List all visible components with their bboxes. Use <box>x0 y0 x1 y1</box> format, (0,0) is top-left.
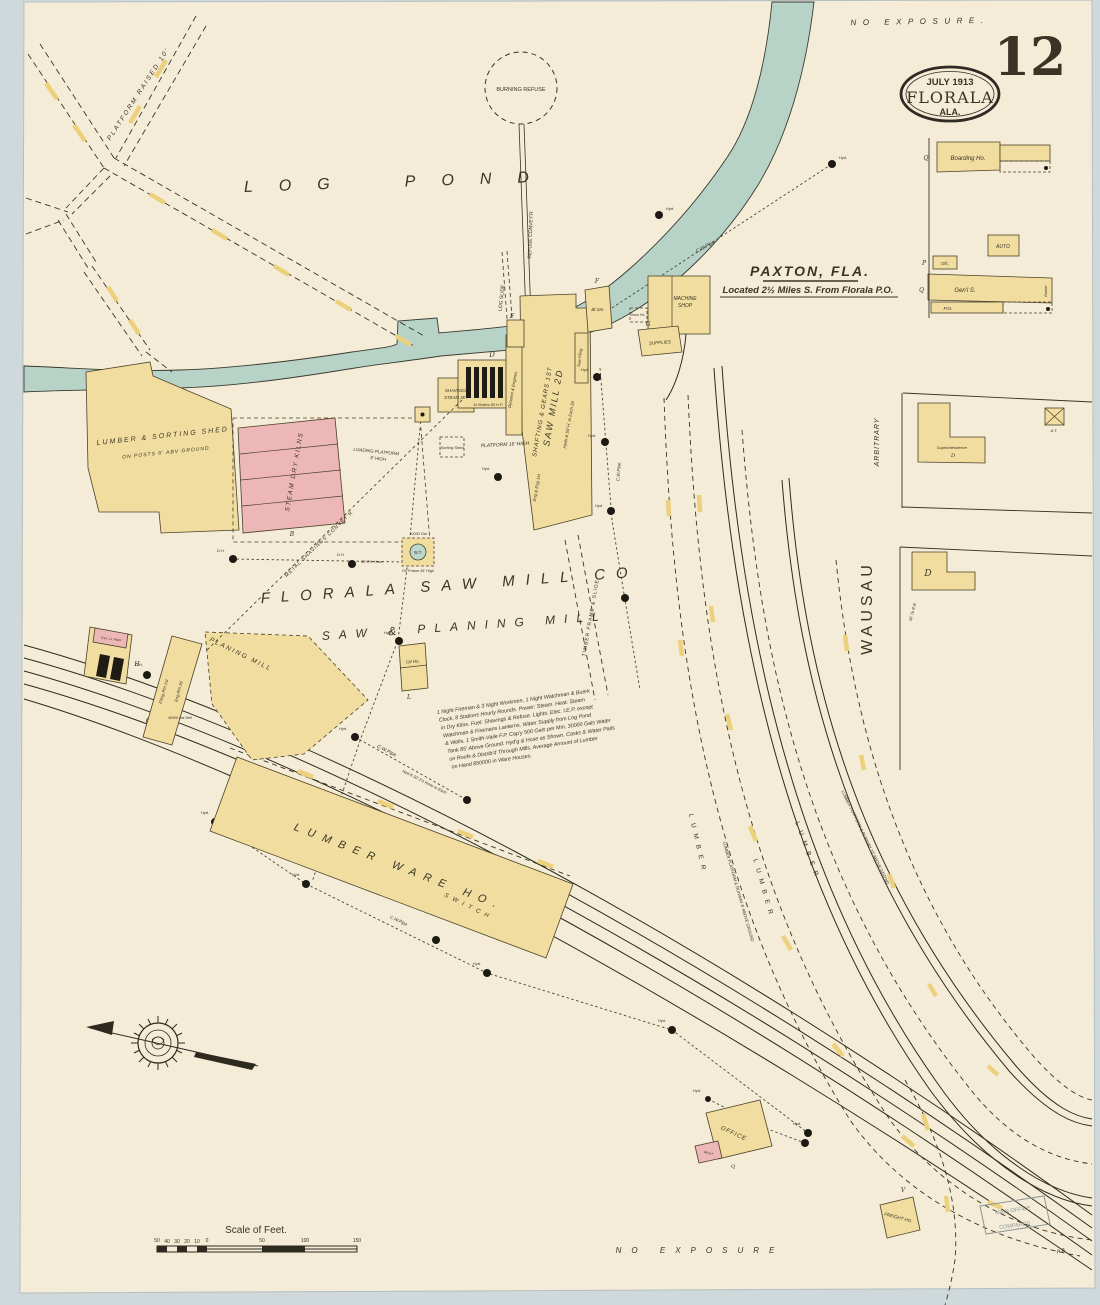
shavings-jet-label-2: Steam Jet <box>444 395 468 400</box>
edition-city: Florala <box>906 88 994 107</box>
supplies-letter: G <box>646 321 651 328</box>
hyd-label: Hyd. <box>292 872 300 877</box>
burning-refuse-label: Burning Refuse <box>496 87 546 93</box>
hyd-label: Hyd. <box>588 433 596 438</box>
ofc-label: Ofc. <box>941 261 949 266</box>
wt-label-3: On Frame 45' High <box>402 569 434 573</box>
hyd-label: Hyd. <box>339 726 347 731</box>
scale-title: Scale of Feet. <box>225 1225 287 1236</box>
office-letter-q: Q <box>731 1164 735 1170</box>
hyd-label: Hyd. <box>666 206 674 211</box>
hyd-label: Hyd. <box>658 1018 666 1023</box>
boarding-ho-label: Boarding Ho. <box>950 156 985 162</box>
wt-label-1: 10000 Gal <box>409 532 427 536</box>
hyd-label: Hyd. <box>581 367 589 372</box>
freight-letter-v: V <box>901 1187 906 1194</box>
dh-label: D.H. <box>217 548 225 553</box>
no-exposure-bottom: No Exposure <box>616 1246 785 1255</box>
shavings-jet-label-1: Shavings <box>445 388 467 393</box>
sorting-shed-label: Sorting Shed <box>440 445 464 450</box>
edition-state: Ala. <box>940 107 961 117</box>
machine-shop-label-1: Machine <box>673 296 697 302</box>
scale-tick: 20 <box>184 1239 190 1245</box>
hyd-label: Hyd. <box>693 1088 701 1093</box>
arbitrary-label: Arbitrary <box>874 417 881 467</box>
boiler-letter: D <box>488 351 495 359</box>
wt-label-2: W.T. <box>414 550 422 555</box>
genl-letter-q: Q <box>919 287 924 294</box>
post-office <box>931 302 1003 313</box>
scale-tick: 40 <box>164 1239 170 1245</box>
elec-plant-letter: H <box>133 661 140 668</box>
scale-tick: 50 <box>154 1238 160 1244</box>
scale-tick: 100 <box>301 1238 310 1244</box>
general-store <box>928 274 1052 303</box>
paxton-subtitle: Located 2½ Miles S. From Florala P.O. <box>723 285 894 296</box>
edition-date: July 1913 <box>926 77 973 88</box>
oil-ho-letter: L <box>406 694 411 701</box>
sanborn-map-sheet: 12 July 1913 Florala Ala. No Exposure. N… <box>0 0 1100 1305</box>
boarding-letter-q: Q. <box>923 155 930 162</box>
boarding-annex <box>1000 145 1050 161</box>
po-label: P.O. <box>944 306 953 312</box>
hose-short-label: 50' 2½ Hose <box>361 559 384 564</box>
hyd-label: Hyd. <box>201 810 209 815</box>
drum-ho-label: Drum Ho. <box>631 313 646 317</box>
well-label: 40000 Gal Well <box>168 716 192 720</box>
blacksmith-label: Bl.Sm. <box>591 307 604 312</box>
dwelling-d-letter: D <box>923 569 931 579</box>
paxton-title: Paxton, Fla. <box>750 263 870 279</box>
hyd-label: Hyd. <box>839 155 847 160</box>
barber-label: Barber <box>1044 285 1048 297</box>
windmill-label: A.T. <box>1050 428 1058 433</box>
hyd-label: Hyd. <box>482 466 490 471</box>
annex-f-letter: F <box>509 313 515 320</box>
scale-tick: 30 <box>174 1239 180 1245</box>
wausau-label: Wausau <box>859 561 876 655</box>
hyd-label: Hyd. <box>595 503 603 508</box>
scale-tick: 10 <box>194 1239 200 1245</box>
kiln-letter-b: B <box>289 531 295 538</box>
map-canvas: 12 July 1913 Florala Ala. No Exposure. N… <box>0 0 1100 1305</box>
superintendence-letter: D <box>950 453 955 459</box>
auto-label: Auto <box>995 244 1010 250</box>
superintendence-label: Superintendence <box>937 445 968 450</box>
machine-shop-label-2: Shop <box>678 303 693 309</box>
hyd-label: Hyd. <box>473 961 481 966</box>
page-number: 12 <box>994 27 1066 88</box>
hyd-label: Hyd. <box>793 1121 801 1126</box>
boilers-label: 14 Boilers 80 H.P. <box>473 403 503 407</box>
scale-tick: 0 <box>206 1238 209 1244</box>
genl-s-label: Gen'l S. <box>954 288 975 294</box>
hyd-label: Hyd. <box>384 630 392 635</box>
annex-f <box>507 320 524 347</box>
blacksmith-letter: F <box>594 278 600 285</box>
oil-house <box>399 643 428 691</box>
scale-tick: 50 <box>259 1238 265 1244</box>
scale-tick: 150 <box>353 1238 362 1244</box>
dh-label: D.H. <box>337 552 345 557</box>
